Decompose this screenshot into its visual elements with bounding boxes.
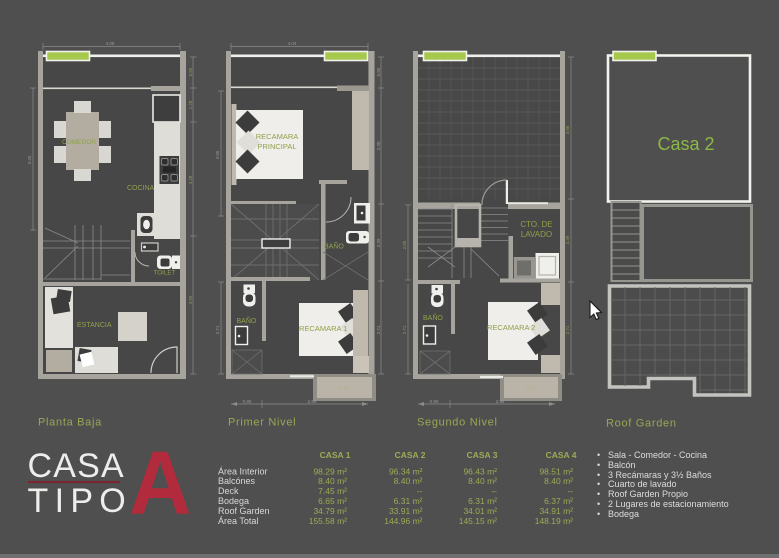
svg-text:RECAMARA 1: RECAMARA 1 [299, 324, 347, 333]
svg-text:Área Total: Área Total [218, 516, 258, 526]
svg-text:8.40 m²: 8.40 m² [318, 476, 347, 486]
svg-text:•: • [597, 489, 600, 499]
svg-text:6.31 m²: 6.31 m² [394, 496, 423, 506]
svg-text:CASA 3: CASA 3 [467, 450, 498, 460]
svg-text:•: • [597, 499, 600, 509]
svg-text:4.08: 4.08 [106, 41, 115, 46]
svg-text:7.45 m²: 7.45 m² [318, 486, 347, 496]
svg-text:•: • [597, 509, 600, 519]
svg-text:CASA 4: CASA 4 [546, 450, 577, 460]
svg-text:8.40: 8.40 [339, 386, 349, 392]
svg-text:2.71: 2.71 [402, 325, 407, 334]
svg-text:8.40: 8.40 [526, 386, 536, 392]
svg-text:3.45: 3.45 [27, 155, 32, 164]
svg-text:Área Interior: Área Interior [218, 466, 268, 476]
svg-text:CTO. DE: CTO. DE [520, 220, 552, 229]
svg-text:3.05: 3.05 [215, 150, 220, 159]
svg-text:CASA 2: CASA 2 [395, 450, 426, 460]
svg-text:34.79 m²: 34.79 m² [313, 506, 347, 516]
svg-text:LAVADO: LAVADO [521, 230, 552, 239]
svg-text:Balcón: Balcón [608, 460, 636, 470]
svg-text:Cuarto de lavado: Cuarto de lavado [608, 479, 677, 489]
svg-text:--: -- [417, 486, 423, 496]
svg-text:1.28: 1.28 [188, 100, 193, 109]
svg-text:ESTANCIA: ESTANCIA [77, 322, 112, 329]
svg-text:COCINA: COCINA [127, 185, 155, 192]
svg-text:Roof Garden: Roof Garden [218, 506, 270, 516]
svg-text:PRINCIPAL: PRINCIPAL [257, 142, 296, 151]
svg-text:TIPO: TIPO [28, 482, 133, 520]
svg-text:3.95: 3.95 [188, 295, 193, 304]
svg-text:2 Lugares de estacionamiento: 2 Lugares de estacionamiento [608, 499, 729, 509]
svg-text:Roof Garden: Roof Garden [606, 418, 677, 430]
svg-text:Bodega: Bodega [608, 509, 639, 519]
svg-text:0.90: 0.90 [243, 399, 252, 404]
svg-text:4.04: 4.04 [288, 41, 297, 46]
svg-text:Sala - Comedor - Cocina: Sala - Comedor - Cocina [608, 450, 707, 460]
svg-text:148.19 m²: 148.19 m² [535, 516, 573, 526]
svg-text:2.71: 2.71 [565, 325, 570, 334]
svg-text:Balcónes: Balcónes [218, 476, 256, 486]
svg-text:0.90: 0.90 [430, 399, 439, 404]
svg-text:155.58 m²: 155.58 m² [309, 516, 347, 526]
svg-text:96.34 m²: 96.34 m² [389, 466, 423, 476]
svg-text:2.98: 2.98 [308, 399, 317, 404]
svg-text:CASA 1: CASA 1 [320, 450, 351, 460]
svg-text:•: • [597, 460, 600, 470]
svg-text:98.29 m²: 98.29 m² [313, 466, 347, 476]
svg-text:RECAMARA: RECAMARA [256, 132, 299, 141]
svg-text:0.85: 0.85 [376, 67, 381, 76]
svg-text:3.08: 3.08 [565, 125, 570, 134]
svg-text:BAÑO: BAÑO [423, 313, 443, 322]
svg-text:8.40 m²: 8.40 m² [394, 476, 423, 486]
svg-text:6.65 m²: 6.65 m² [318, 496, 347, 506]
svg-text:•: • [597, 479, 600, 489]
svg-text:TOILET: TOILET [154, 270, 176, 277]
svg-text:2.98: 2.98 [496, 399, 505, 404]
svg-text:Casa 2: Casa 2 [657, 134, 714, 154]
svg-text:8.40 m²: 8.40 m² [544, 476, 573, 486]
svg-text:3.28: 3.28 [188, 175, 193, 184]
svg-text:Segundo Nivel: Segundo Nivel [417, 417, 498, 429]
svg-text:34.01 m²: 34.01 m² [463, 506, 497, 516]
svg-text:0.85: 0.85 [188, 67, 193, 76]
svg-text:--: -- [491, 486, 497, 496]
svg-text:--: -- [567, 486, 573, 496]
svg-text:BAÑO: BAÑO [324, 242, 344, 251]
svg-text:96.43 m²: 96.43 m² [463, 466, 497, 476]
svg-text:Bodega: Bodega [218, 496, 249, 506]
svg-text:COMEDOR: COMEDOR [62, 139, 96, 146]
svg-text:2.05: 2.05 [402, 240, 407, 249]
svg-text:98.51 m²: 98.51 m² [539, 466, 573, 476]
svg-text:•: • [597, 450, 600, 460]
svg-text:BAÑO: BAÑO [237, 316, 257, 325]
svg-text:34.91 m²: 34.91 m² [539, 506, 573, 516]
svg-text:2.39: 2.39 [565, 235, 570, 244]
svg-text:2.71: 2.71 [215, 325, 220, 334]
svg-text:Planta Baja: Planta Baja [38, 417, 102, 429]
svg-text:6.37 m²: 6.37 m² [544, 496, 573, 506]
svg-text:RECAMARA 2: RECAMARA 2 [487, 323, 535, 332]
svg-text:2.39: 2.39 [376, 238, 381, 247]
svg-text:2.30: 2.30 [376, 141, 381, 150]
svg-text:Deck: Deck [218, 486, 239, 496]
svg-text:145.15 m²: 145.15 m² [459, 516, 497, 526]
svg-text:A: A [129, 432, 191, 533]
svg-text:CASA: CASA [28, 447, 125, 485]
svg-text:144.96 m²: 144.96 m² [384, 516, 422, 526]
svg-text:2.71: 2.71 [376, 325, 381, 334]
svg-text:6.31 m²: 6.31 m² [468, 496, 497, 506]
svg-text:Primer Nivel: Primer Nivel [228, 417, 296, 429]
svg-text:8.40 m²: 8.40 m² [468, 476, 497, 486]
svg-text:Roof Garden Propio: Roof Garden Propio [608, 489, 688, 499]
svg-text:33.91 m²: 33.91 m² [389, 506, 423, 516]
